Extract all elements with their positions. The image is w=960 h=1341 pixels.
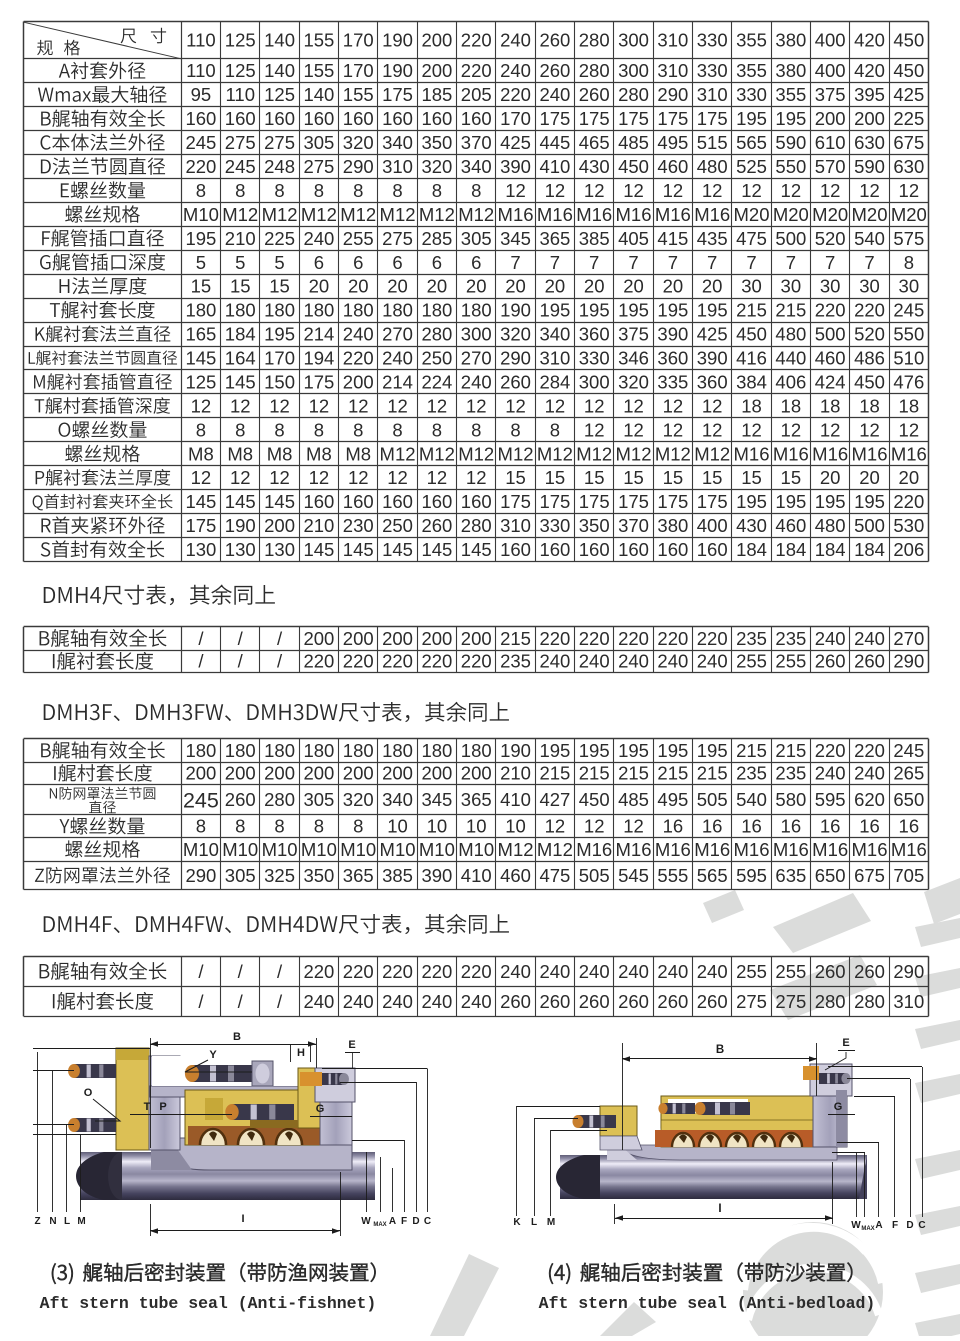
svg-text:416: 416	[736, 348, 767, 369]
svg-text:275: 275	[264, 132, 295, 153]
svg-text:Aft stern tube seal (Anti-fish: Aft stern tube seal (Anti-fishnet)	[40, 1294, 377, 1313]
svg-text:240: 240	[657, 961, 688, 982]
svg-text:M10: M10	[380, 839, 416, 860]
svg-text:450: 450	[854, 371, 885, 392]
svg-text:145: 145	[421, 539, 452, 560]
svg-text:245: 245	[185, 132, 216, 153]
svg-text:340: 340	[461, 156, 492, 177]
svg-text:12: 12	[623, 395, 644, 416]
svg-text:225: 225	[264, 228, 295, 249]
svg-text:280: 280	[421, 324, 452, 345]
svg-text:200: 200	[185, 763, 216, 784]
svg-text:12: 12	[623, 419, 644, 440]
svg-text:MAX: MAX	[373, 1222, 386, 1228]
svg-text:476: 476	[893, 371, 924, 392]
svg-text:240: 240	[618, 961, 649, 982]
svg-text:240: 240	[815, 628, 846, 649]
svg-text:M12: M12	[576, 443, 612, 464]
svg-text:425: 425	[500, 132, 531, 153]
svg-text:145: 145	[303, 539, 334, 560]
svg-text:410: 410	[539, 156, 570, 177]
svg-text:12: 12	[230, 467, 251, 488]
svg-text:505: 505	[697, 789, 728, 810]
svg-text:214: 214	[303, 324, 334, 345]
svg-text:M12: M12	[616, 443, 652, 464]
svg-text:505: 505	[579, 865, 610, 886]
svg-text:164: 164	[225, 348, 256, 369]
svg-text:M10: M10	[301, 839, 337, 860]
svg-text:12: 12	[663, 180, 684, 201]
svg-text:P: P	[159, 1101, 166, 1113]
svg-text:240: 240	[815, 763, 846, 784]
svg-text:12: 12	[899, 180, 920, 201]
svg-text:330: 330	[539, 515, 570, 536]
svg-text:425: 425	[697, 324, 728, 345]
svg-text:170: 170	[343, 30, 374, 51]
svg-text:8: 8	[274, 816, 284, 837]
svg-text:M16: M16	[734, 443, 770, 464]
svg-text:424: 424	[815, 371, 846, 392]
svg-text:20: 20	[427, 276, 448, 297]
svg-text:15: 15	[702, 467, 723, 488]
svg-text:410: 410	[500, 789, 531, 810]
svg-text:365: 365	[343, 865, 374, 886]
svg-text:180: 180	[461, 740, 492, 761]
svg-text:12: 12	[505, 180, 526, 201]
svg-text:K: K	[513, 1217, 521, 1228]
svg-text:460: 460	[775, 515, 806, 536]
svg-text:180: 180	[421, 740, 452, 761]
svg-text:/: /	[277, 651, 283, 672]
svg-text:20: 20	[663, 276, 684, 297]
svg-text:12: 12	[741, 180, 762, 201]
svg-text:630: 630	[893, 156, 924, 177]
svg-text:460: 460	[500, 865, 531, 886]
svg-text:12: 12	[191, 467, 212, 488]
svg-text:7: 7	[510, 252, 520, 273]
svg-text:215: 215	[539, 763, 570, 784]
svg-text:340: 340	[539, 324, 570, 345]
svg-text:M16: M16	[891, 443, 927, 464]
svg-text:20: 20	[899, 467, 920, 488]
svg-text:12: 12	[859, 419, 880, 440]
svg-text:240: 240	[657, 651, 688, 672]
svg-text:160: 160	[697, 539, 728, 560]
svg-text:175: 175	[539, 108, 570, 129]
svg-text:195: 195	[539, 740, 570, 761]
svg-text:15: 15	[545, 467, 566, 488]
svg-text:220: 220	[185, 156, 216, 177]
svg-text:155: 155	[303, 30, 334, 51]
svg-text:/: /	[198, 961, 204, 982]
svg-text:220: 220	[697, 628, 728, 649]
svg-text:160: 160	[539, 539, 570, 560]
svg-text:240: 240	[382, 991, 413, 1012]
svg-text:500: 500	[775, 228, 806, 249]
svg-text:330: 330	[579, 348, 610, 369]
svg-text:200: 200	[264, 515, 295, 536]
svg-text:520: 520	[815, 228, 846, 249]
svg-text:8: 8	[432, 180, 442, 201]
svg-text:195: 195	[618, 300, 649, 321]
svg-text:8: 8	[314, 419, 324, 440]
svg-text:160: 160	[264, 108, 295, 129]
svg-text:450: 450	[579, 789, 610, 810]
svg-text:12: 12	[623, 816, 644, 837]
svg-text:365: 365	[539, 228, 570, 249]
svg-text:170: 170	[264, 348, 295, 369]
svg-text:/: /	[238, 991, 244, 1012]
svg-text:384: 384	[736, 371, 767, 392]
svg-text:145: 145	[343, 539, 374, 560]
svg-text:235: 235	[736, 628, 767, 649]
svg-text:8: 8	[510, 419, 520, 440]
svg-text:12: 12	[545, 180, 566, 201]
svg-text:5: 5	[235, 252, 245, 273]
svg-text:125: 125	[264, 84, 295, 105]
svg-text:195: 195	[579, 300, 610, 321]
svg-text:200: 200	[382, 628, 413, 649]
svg-text:500: 500	[854, 515, 885, 536]
svg-text:260: 260	[618, 991, 649, 1012]
svg-text:D: D	[906, 1220, 913, 1231]
svg-text:M16: M16	[773, 839, 809, 860]
svg-text:160: 160	[185, 108, 216, 129]
svg-text:W: W	[851, 1220, 861, 1231]
svg-text:160: 160	[343, 491, 374, 512]
svg-text:330: 330	[697, 30, 728, 51]
svg-text:320: 320	[343, 789, 374, 810]
svg-text:12: 12	[545, 816, 566, 837]
svg-text:675: 675	[854, 865, 885, 886]
svg-text:285: 285	[421, 228, 452, 249]
svg-text:280: 280	[579, 30, 610, 51]
svg-text:6: 6	[471, 252, 481, 273]
svg-text:N: N	[49, 1216, 56, 1227]
svg-text:8: 8	[353, 180, 363, 201]
svg-text:194: 194	[303, 348, 334, 369]
svg-text:235: 235	[775, 763, 806, 784]
svg-text:20: 20	[584, 276, 605, 297]
svg-text:H: H	[297, 1047, 305, 1059]
svg-text:215: 215	[775, 300, 806, 321]
svg-text:280: 280	[579, 60, 610, 81]
svg-text:206: 206	[893, 539, 924, 560]
svg-text:145: 145	[382, 539, 413, 560]
svg-text:310: 310	[382, 156, 413, 177]
svg-text:405: 405	[618, 228, 649, 249]
svg-text:6: 6	[432, 252, 442, 273]
svg-text:540: 540	[854, 228, 885, 249]
svg-text:345: 345	[421, 789, 452, 810]
svg-text:305: 305	[461, 228, 492, 249]
svg-text:650: 650	[815, 865, 846, 886]
svg-text:7: 7	[589, 252, 599, 273]
svg-text:8: 8	[471, 180, 481, 201]
svg-text:290: 290	[185, 865, 216, 886]
svg-text:MAX: MAX	[861, 1226, 874, 1232]
svg-text:/: /	[198, 991, 204, 1012]
svg-text:Z: Z	[34, 1216, 40, 1227]
svg-text:465: 465	[579, 132, 610, 153]
svg-text:M16: M16	[655, 204, 691, 225]
svg-text:M10: M10	[183, 204, 219, 225]
svg-text:425: 425	[893, 84, 924, 105]
svg-text:10: 10	[505, 816, 526, 837]
svg-text:380: 380	[775, 30, 806, 51]
svg-text:7: 7	[707, 252, 717, 273]
svg-text:220: 220	[815, 740, 846, 761]
svg-text:240: 240	[618, 651, 649, 672]
svg-text:195: 195	[657, 740, 688, 761]
svg-text:A: A	[389, 1216, 396, 1227]
svg-text:160: 160	[303, 108, 334, 129]
svg-text:18: 18	[741, 395, 762, 416]
svg-text:450: 450	[618, 156, 649, 177]
svg-text:595: 595	[815, 789, 846, 810]
svg-text:275: 275	[382, 228, 413, 249]
svg-text:365: 365	[461, 789, 492, 810]
svg-text:8: 8	[196, 419, 206, 440]
svg-text:350: 350	[421, 132, 452, 153]
svg-text:510: 510	[893, 348, 924, 369]
svg-text:260: 260	[815, 651, 846, 672]
svg-text:15: 15	[191, 276, 212, 297]
svg-text:20: 20	[623, 276, 644, 297]
svg-text:200: 200	[461, 628, 492, 649]
svg-text:200: 200	[854, 108, 885, 129]
svg-text:I: I	[718, 1203, 721, 1215]
svg-text:310: 310	[657, 30, 688, 51]
svg-text:195: 195	[539, 300, 570, 321]
svg-text:12: 12	[781, 180, 802, 201]
svg-text:M12: M12	[301, 204, 337, 225]
svg-text:190: 190	[382, 30, 413, 51]
svg-text:8: 8	[550, 419, 560, 440]
svg-text:275: 275	[736, 991, 767, 1012]
svg-text:30: 30	[741, 276, 762, 297]
svg-text:240: 240	[461, 991, 492, 1012]
svg-text:12: 12	[545, 395, 566, 416]
svg-text:175: 175	[657, 108, 688, 129]
svg-text:340: 340	[382, 132, 413, 153]
svg-text:L: L	[64, 1216, 70, 1227]
svg-text:400: 400	[815, 30, 846, 51]
svg-text:580: 580	[775, 789, 806, 810]
svg-text:180: 180	[303, 740, 334, 761]
svg-text:180: 180	[421, 300, 452, 321]
svg-text:10: 10	[387, 816, 408, 837]
svg-text:325: 325	[264, 865, 295, 886]
svg-text:180: 180	[382, 300, 413, 321]
svg-text:240: 240	[539, 961, 570, 982]
svg-text:200: 200	[343, 371, 374, 392]
svg-text:/: /	[198, 628, 204, 649]
svg-text:180: 180	[264, 740, 295, 761]
svg-text:475: 475	[539, 865, 570, 886]
svg-text:635: 635	[775, 865, 806, 886]
svg-text:440: 440	[775, 348, 806, 369]
svg-text:620: 620	[854, 789, 885, 810]
svg-text:390: 390	[657, 324, 688, 345]
svg-text:290: 290	[893, 961, 924, 982]
svg-text:O: O	[84, 1087, 93, 1099]
svg-text:125: 125	[225, 60, 256, 81]
svg-text:330: 330	[697, 60, 728, 81]
svg-text:12: 12	[781, 419, 802, 440]
svg-text:8: 8	[274, 180, 284, 201]
svg-text:M8: M8	[267, 443, 293, 464]
svg-text:310: 310	[500, 515, 531, 536]
svg-text:T: T	[144, 1101, 151, 1113]
svg-text:300: 300	[618, 30, 649, 51]
svg-text:M16: M16	[576, 839, 612, 860]
svg-text:220: 220	[815, 300, 846, 321]
svg-text:390: 390	[500, 156, 531, 177]
svg-text:W: W	[361, 1216, 371, 1227]
svg-text:650: 650	[893, 789, 924, 810]
svg-text:/: /	[238, 628, 244, 649]
svg-text:M10: M10	[340, 839, 376, 860]
svg-text:M16: M16	[616, 204, 652, 225]
svg-text:160: 160	[461, 491, 492, 512]
svg-text:M16: M16	[812, 839, 848, 860]
svg-text:200: 200	[264, 763, 295, 784]
svg-text:220: 220	[382, 651, 413, 672]
svg-text:M12: M12	[458, 204, 494, 225]
svg-text:/: /	[238, 961, 244, 982]
svg-text:12: 12	[387, 467, 408, 488]
svg-text:M10: M10	[183, 839, 219, 860]
svg-text:150: 150	[264, 371, 295, 392]
svg-text:175: 175	[657, 491, 688, 512]
svg-text:M16: M16	[694, 204, 730, 225]
svg-text:450: 450	[736, 324, 767, 345]
svg-text:Y: Y	[209, 1049, 217, 1061]
svg-text:12: 12	[348, 395, 369, 416]
svg-text:M12: M12	[537, 839, 573, 860]
svg-text:240: 240	[343, 324, 374, 345]
svg-text:M: M	[547, 1217, 555, 1228]
svg-text:M20: M20	[734, 204, 770, 225]
svg-text:6: 6	[392, 252, 402, 273]
svg-text:195: 195	[815, 491, 846, 512]
svg-text:175: 175	[185, 515, 216, 536]
svg-text:255: 255	[775, 961, 806, 982]
svg-text:8: 8	[314, 180, 324, 201]
svg-text:225: 225	[893, 108, 924, 129]
svg-text:280: 280	[854, 991, 885, 1012]
svg-text:M12: M12	[262, 204, 298, 225]
svg-text:18: 18	[781, 395, 802, 416]
svg-text:260: 260	[539, 30, 570, 51]
svg-text:145: 145	[185, 348, 216, 369]
svg-text:427: 427	[539, 789, 570, 810]
svg-text:200: 200	[461, 763, 492, 784]
svg-text:M16: M16	[852, 443, 888, 464]
svg-text:520: 520	[854, 324, 885, 345]
svg-text:10: 10	[466, 816, 487, 837]
svg-text:460: 460	[815, 348, 846, 369]
svg-text:260: 260	[539, 991, 570, 1012]
svg-text:200: 200	[421, 60, 452, 81]
svg-text:220: 220	[303, 651, 334, 672]
svg-text:240: 240	[854, 763, 885, 784]
svg-text:360: 360	[579, 324, 610, 345]
svg-text:180: 180	[343, 300, 374, 321]
svg-text:200: 200	[421, 628, 452, 649]
svg-text:255: 255	[343, 228, 374, 249]
svg-text:8: 8	[235, 180, 245, 201]
svg-text:160: 160	[382, 108, 413, 129]
svg-text:M16: M16	[891, 839, 927, 860]
svg-text:5: 5	[274, 252, 284, 273]
svg-text:245: 245	[893, 300, 924, 321]
svg-text:565: 565	[736, 132, 767, 153]
svg-text:450: 450	[893, 30, 924, 51]
svg-text:355: 355	[775, 84, 806, 105]
svg-text:12: 12	[584, 816, 605, 837]
svg-text:180: 180	[382, 740, 413, 761]
svg-text:214: 214	[382, 371, 413, 392]
svg-text:15: 15	[741, 467, 762, 488]
svg-text:675: 675	[893, 132, 924, 153]
svg-text:M20: M20	[812, 204, 848, 225]
svg-text:G: G	[316, 1103, 325, 1115]
svg-text:160: 160	[225, 108, 256, 129]
svg-text:385: 385	[382, 865, 413, 886]
svg-text:486: 486	[854, 348, 885, 369]
svg-text:415: 415	[657, 228, 688, 249]
svg-text:485: 485	[618, 789, 649, 810]
svg-text:7: 7	[550, 252, 560, 273]
svg-text:M8: M8	[188, 443, 214, 464]
svg-text:250: 250	[382, 515, 413, 536]
svg-text:B: B	[233, 1031, 241, 1043]
svg-text:305: 305	[303, 132, 334, 153]
svg-text:370: 370	[461, 132, 492, 153]
svg-text:8: 8	[235, 816, 245, 837]
svg-text:195: 195	[657, 300, 688, 321]
svg-text:260: 260	[657, 991, 688, 1012]
svg-text:248: 248	[264, 156, 295, 177]
svg-text:M10: M10	[419, 839, 455, 860]
svg-text:7: 7	[628, 252, 638, 273]
svg-text:8: 8	[314, 816, 324, 837]
svg-text:345: 345	[500, 228, 531, 249]
svg-text:15: 15	[663, 467, 684, 488]
svg-text:16: 16	[663, 816, 684, 837]
svg-text:175: 175	[579, 108, 610, 129]
svg-text:20: 20	[859, 467, 880, 488]
svg-text:110: 110	[225, 84, 255, 105]
svg-text:395: 395	[854, 84, 885, 105]
svg-text:260: 260	[225, 789, 256, 810]
svg-text:160: 160	[657, 539, 688, 560]
svg-text:480: 480	[697, 156, 728, 177]
svg-text:260: 260	[500, 371, 531, 392]
svg-text:280: 280	[815, 991, 846, 1012]
svg-text:195: 195	[185, 228, 216, 249]
svg-text:175: 175	[618, 108, 649, 129]
svg-text:215: 215	[736, 740, 767, 761]
svg-text:235: 235	[736, 763, 767, 784]
svg-text:12: 12	[702, 419, 723, 440]
svg-text:220: 220	[461, 961, 492, 982]
svg-text:I: I	[241, 1213, 244, 1225]
svg-text:M8: M8	[227, 443, 253, 464]
svg-text:400: 400	[697, 515, 728, 536]
